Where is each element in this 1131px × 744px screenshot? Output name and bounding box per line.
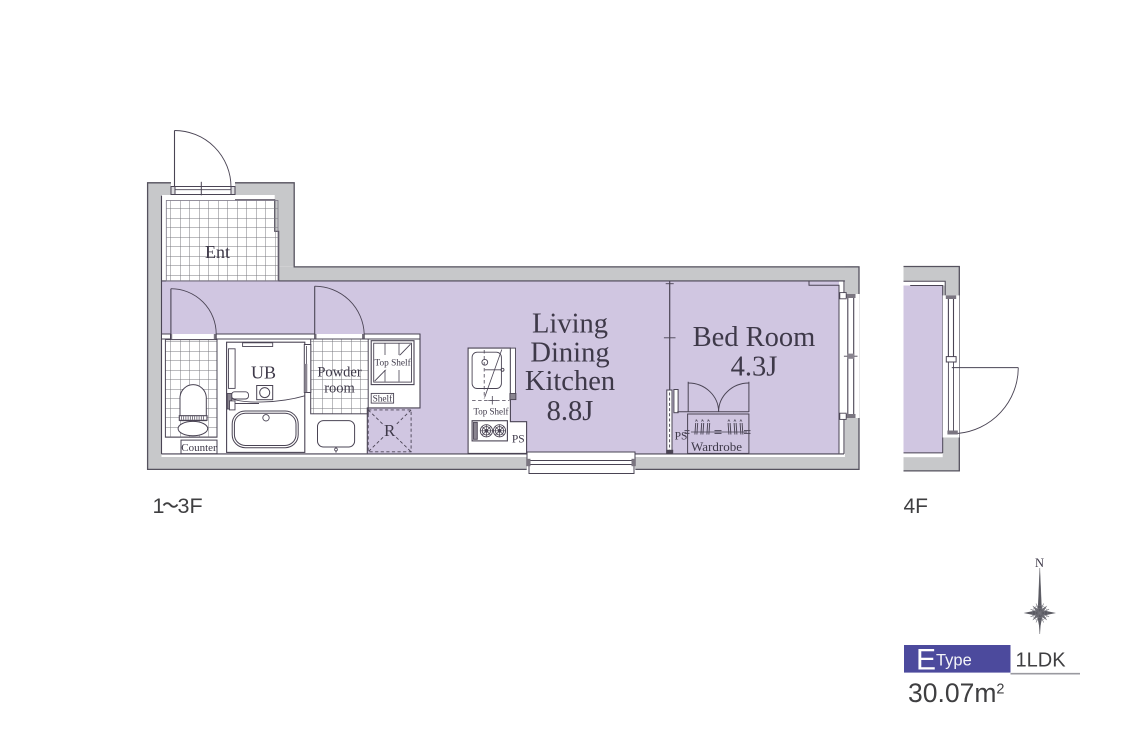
svg-text:E: E (916, 644, 936, 677)
svg-text:Ent: Ent (205, 242, 230, 262)
svg-text:8.8J: 8.8J (547, 396, 594, 427)
svg-text:Type: Type (936, 652, 972, 670)
svg-text:4.3J: 4.3J (731, 352, 778, 383)
svg-text:Bed Room: Bed Room (693, 322, 816, 353)
svg-text:1LDK: 1LDK (1016, 650, 1067, 672)
svg-text:Powder: Powder (317, 365, 361, 381)
svg-text:room: room (324, 381, 355, 397)
svg-text:R: R (384, 421, 396, 440)
svg-text:Top Shelf: Top Shelf (374, 358, 411, 369)
svg-text:Shelf: Shelf (373, 393, 394, 404)
svg-text:Counter: Counter (181, 442, 217, 454)
svg-text:Living: Living (532, 308, 608, 339)
svg-text:1: 1 (153, 494, 165, 518)
svg-text:30.07m2: 30.07m2 (908, 678, 1004, 708)
svg-text:4F: 4F (904, 495, 929, 518)
svg-text:PS: PS (512, 433, 525, 445)
svg-text:Dining: Dining (530, 338, 609, 369)
svg-text:UB: UB (251, 363, 276, 383)
svg-text:Kitchen: Kitchen (525, 366, 615, 397)
svg-text:Top Shelf: Top Shelf (473, 406, 508, 416)
svg-text:N: N (1035, 556, 1044, 570)
svg-text:PS: PS (675, 431, 688, 443)
svg-text:3F: 3F (178, 494, 203, 518)
svg-text:Wardrobe: Wardrobe (691, 439, 742, 454)
